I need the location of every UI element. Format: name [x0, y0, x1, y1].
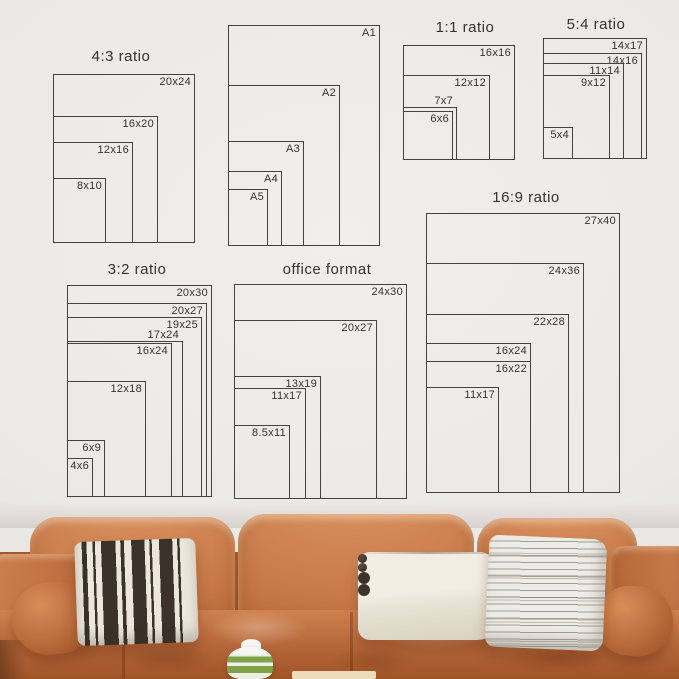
- poster-size-guide-image: 4:3 ratio20x2416x2012x168x10A1A2A3A4A51:…: [0, 0, 679, 679]
- size-label: 24x36: [549, 265, 580, 277]
- size-rect-office-format-8-5x11: 8.5x11: [234, 425, 290, 499]
- size-label: 5x4: [550, 129, 569, 141]
- size-label: 20x27: [172, 305, 203, 317]
- size-diagram-layer: 4:3 ratio20x2416x2012x168x10A1A2A3A4A51:…: [0, 0, 679, 679]
- size-label: A5: [250, 191, 264, 203]
- size-label: 22x28: [534, 316, 565, 328]
- size-label: A2: [322, 87, 336, 99]
- group-title-4-3-ratio: 4:3 ratio: [92, 48, 151, 65]
- size-label: 16x20: [123, 118, 154, 130]
- size-label: 6x6: [430, 113, 449, 125]
- size-label: 8.5x11: [252, 427, 286, 439]
- size-label: 6x9: [82, 442, 101, 454]
- size-label: 16x24: [496, 345, 527, 357]
- size-label: 12x12: [455, 77, 486, 89]
- size-label: 14x17: [612, 40, 643, 52]
- group-title-3-2-ratio: 3:2 ratio: [108, 261, 167, 278]
- group-title-16-9-ratio: 16:9 ratio: [492, 189, 560, 206]
- size-label: 27x40: [585, 215, 616, 227]
- group-title-5-4-ratio: 5:4 ratio: [567, 16, 626, 33]
- size-rect-4-3-ratio-8x10: 8x10: [53, 178, 106, 243]
- size-label: 12x16: [98, 144, 129, 156]
- size-label: 17x24: [148, 329, 179, 341]
- size-label: 20x24: [160, 76, 191, 88]
- size-label: 20x30: [177, 287, 208, 299]
- size-label: 12x18: [111, 383, 142, 395]
- group-title-1-1-ratio: 1:1 ratio: [436, 19, 495, 36]
- size-label: 8x10: [77, 180, 102, 192]
- size-rect-5-4-ratio-5x4: 5x4: [543, 127, 573, 159]
- size-label: 7x7: [434, 95, 453, 107]
- size-label: 24x30: [372, 286, 403, 298]
- size-label: A1: [362, 27, 376, 39]
- size-label: 11x17: [464, 389, 495, 401]
- size-label: 9x12: [581, 77, 606, 89]
- size-rect-1-1-ratio-6x6: 6x6: [403, 111, 453, 160]
- size-label: 11x17: [271, 390, 302, 402]
- size-label: 4x6: [70, 460, 89, 472]
- group-title-office-format: office format: [283, 261, 372, 278]
- size-label: A4: [264, 173, 278, 185]
- size-rect-3-2-ratio-4x6: 4x6: [67, 458, 93, 497]
- size-rect-a-series-a5: A5: [228, 189, 268, 246]
- size-label: 16x16: [480, 47, 511, 59]
- size-label: A3: [286, 143, 300, 155]
- size-rect-16-9-ratio-11x17: 11x17: [426, 387, 499, 493]
- size-label: 16x24: [137, 345, 168, 357]
- size-label: 16x22: [496, 363, 527, 375]
- size-label: 20x27: [342, 322, 373, 334]
